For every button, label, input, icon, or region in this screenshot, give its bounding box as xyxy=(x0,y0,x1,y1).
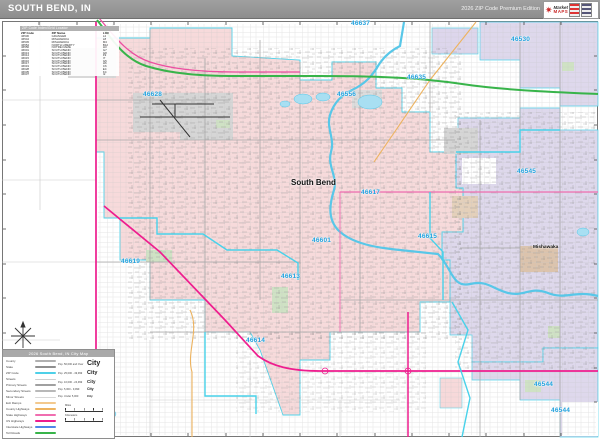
legend-item: Secondary Streets xyxy=(6,389,56,393)
legend-item: State xyxy=(6,365,56,369)
scalebar-miles-label: Miles xyxy=(65,404,71,407)
legend-item: Exit Ramps xyxy=(6,401,56,405)
line-sample xyxy=(35,360,56,362)
population-class: Pop. 5,000 - 9,999City xyxy=(58,387,94,391)
legend-item: Interstate Highways xyxy=(6,425,56,429)
line-sample xyxy=(35,379,56,380)
line-sample xyxy=(35,408,56,410)
edition-label: 2026 ZIP Code Premium Edition xyxy=(461,6,540,12)
legend-item: County Highways xyxy=(6,407,56,411)
zip-label: 46617 xyxy=(361,189,380,196)
city-sample: City xyxy=(87,379,96,384)
line-sample xyxy=(35,397,56,398)
population-class: Pop. 10,000 - 24,999City xyxy=(58,379,96,384)
line-sample xyxy=(35,402,56,403)
header-bar: SOUTH BEND, IN 2026 ZIP Code Premium Edi… xyxy=(0,0,600,19)
logo-star-icon: ✷ xyxy=(545,6,553,15)
line-sample xyxy=(35,372,56,375)
logo-badge-blue xyxy=(581,3,592,17)
zip-label: 46615 xyxy=(418,233,437,240)
line-sample xyxy=(35,390,56,391)
zip-label: 46628 xyxy=(143,91,162,98)
zip-label: 46637 xyxy=(351,20,370,27)
legend-item: Streets xyxy=(6,377,56,381)
map-title: SOUTH BEND, IN xyxy=(8,3,91,14)
zip-label: 46530 xyxy=(511,36,530,43)
scalebar-miles xyxy=(65,408,103,412)
city-sample: City xyxy=(87,360,100,367)
legend-item: Toll Roads xyxy=(6,431,56,435)
brand-logo: ✷ Market MAPS xyxy=(543,1,599,19)
legend-item: ZIP Code xyxy=(6,371,56,375)
logo-brand-bottom: MAPS xyxy=(554,10,569,15)
line-sample xyxy=(35,420,56,422)
cell-name: SOUTH BEND xyxy=(51,73,102,76)
cell-loc: I2 xyxy=(102,73,119,76)
line-sample xyxy=(35,426,56,429)
legend-item: US Highways xyxy=(6,419,56,423)
city-sample: City xyxy=(87,370,97,376)
population-class: Pop. 50,000 and OverCity xyxy=(58,360,100,367)
cell-zip: 46637 xyxy=(20,73,51,76)
legend-panel: 2026 South Bend, IN City Map County Stat… xyxy=(2,349,115,439)
legend-item: Primary Streets xyxy=(6,383,56,387)
population-class: Pop. Under 5,000City xyxy=(58,394,93,398)
legend-title: 2026 South Bend, IN City Map xyxy=(3,350,114,357)
legend-item: Minor Streets xyxy=(6,395,56,399)
zip-index-table: ZIP Code ZIP Name LOC 46530GRANGERL2 465… xyxy=(20,32,119,76)
zip-index-panel: ZIP Code Index/Grid Locator ZIP Code ZIP… xyxy=(20,26,119,76)
scalebar-km-label: Kilometers xyxy=(65,414,77,417)
zip-label: 46556 xyxy=(337,91,356,98)
zip-label: 46544 xyxy=(534,381,553,388)
city-label-south-bend: South Bend xyxy=(291,178,336,187)
zip-label: 46635 xyxy=(407,74,426,81)
scalebar-kilometers xyxy=(65,418,103,422)
zip-label: 46601 xyxy=(312,237,331,244)
line-sample xyxy=(35,432,56,434)
zip-label: 46613 xyxy=(281,273,300,280)
line-sample xyxy=(35,414,56,416)
line-sample xyxy=(35,366,56,368)
logo-badge-red xyxy=(569,3,580,17)
zip-index-row: 46637SOUTH BENDI2 xyxy=(20,73,119,76)
map-poster: SOUTH BEND, IN 2026 ZIP Code Premium Edi… xyxy=(0,0,600,439)
population-class: Pop. 25,000 - 49,999City xyxy=(58,370,97,376)
legend-item: State Highways xyxy=(6,413,56,417)
zip-label: 46544 xyxy=(551,407,570,414)
city-sample: City xyxy=(87,394,93,398)
zip-label: 46619 xyxy=(121,258,140,265)
line-sample xyxy=(35,384,56,386)
city-label-mishawaka: Mishawaka xyxy=(533,245,558,250)
zip-label: 46545 xyxy=(517,168,536,175)
city-sample: City xyxy=(87,387,94,391)
zip-label: 46614 xyxy=(246,337,265,344)
legend-item: County xyxy=(6,359,56,363)
